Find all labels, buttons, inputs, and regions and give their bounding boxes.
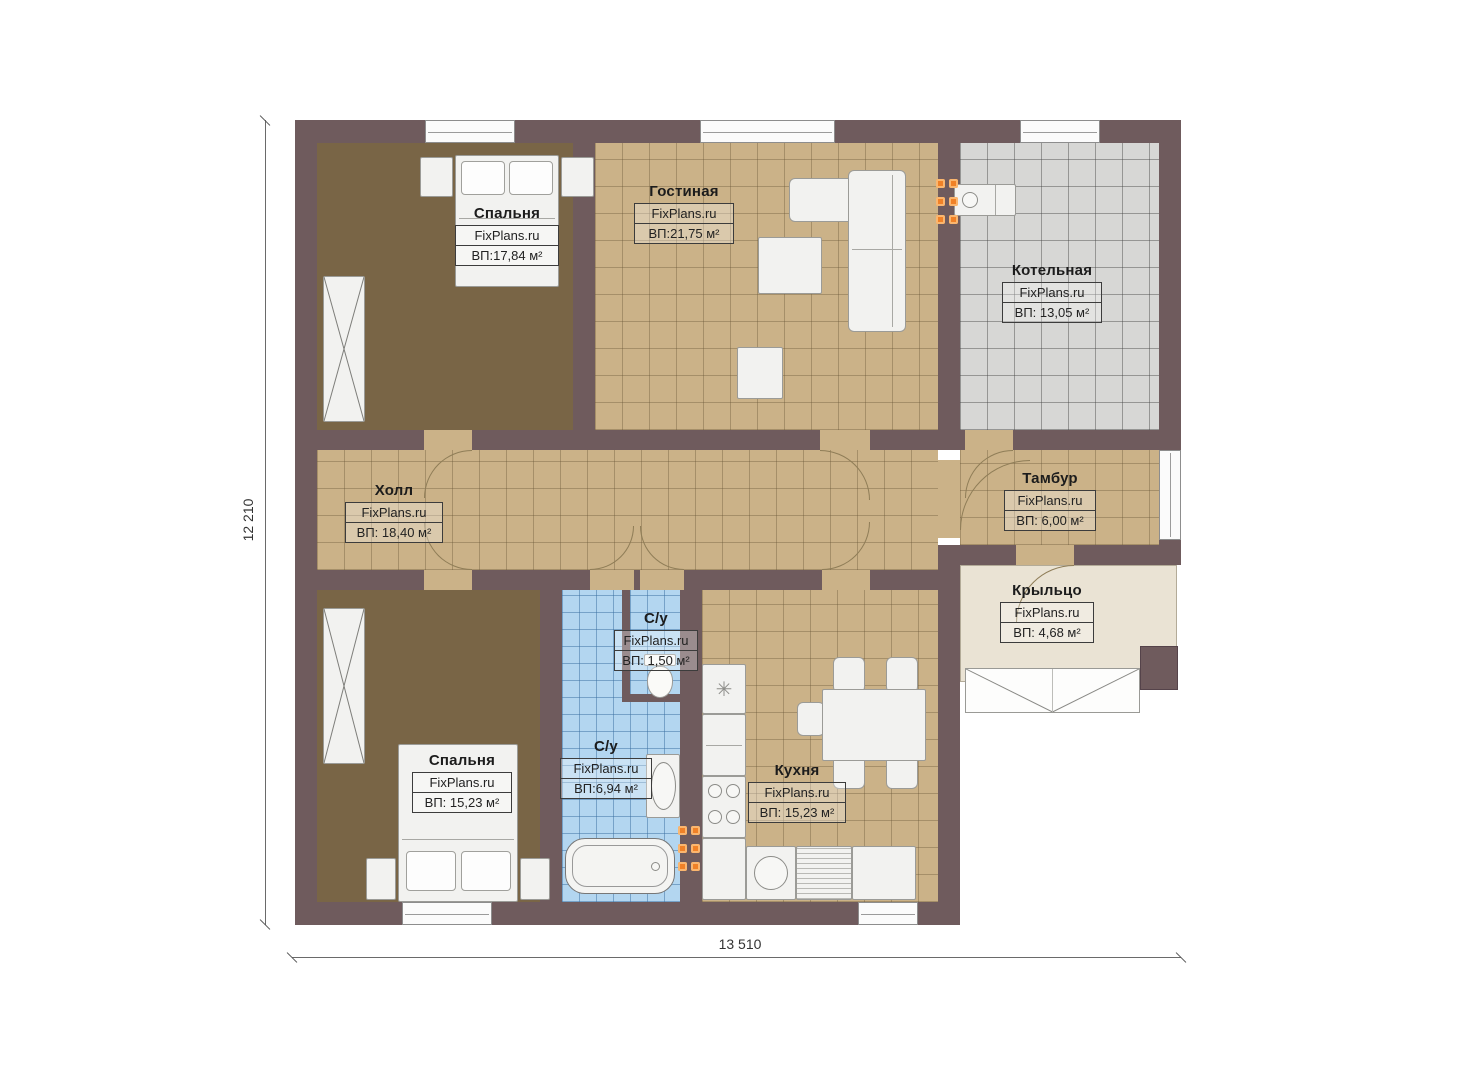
stove bbox=[702, 776, 746, 838]
room-area: ВП:21,75 м² bbox=[635, 224, 733, 243]
nightstand-left-bedroom-1 bbox=[420, 157, 453, 197]
brand-watermark: FixPlans.ru bbox=[635, 204, 733, 224]
room-area: ВП: 6,00 м² bbox=[1005, 511, 1095, 530]
wall-kitchen-right bbox=[938, 545, 960, 925]
pillow bbox=[509, 161, 553, 195]
room-area: ВП:6,94 м² bbox=[561, 779, 651, 798]
brand-watermark: FixPlans.ru bbox=[1001, 603, 1093, 623]
sofa-corner-section bbox=[848, 170, 906, 332]
pillow bbox=[461, 851, 511, 891]
wardrobe-cross-icon bbox=[324, 609, 364, 763]
bathtub-drain-icon bbox=[651, 862, 660, 871]
door-gap-bathroom bbox=[640, 570, 684, 590]
sink-bowl bbox=[754, 856, 788, 890]
dimension-label-left: 12 210 bbox=[240, 490, 256, 550]
window-living-room bbox=[700, 120, 835, 143]
room-label-hall: Холл FixPlans.ru ВП: 18,40 м² bbox=[345, 482, 443, 543]
brand-watermark: FixPlans.ru bbox=[413, 773, 511, 793]
room-label-living-room: Гостиная FixPlans.ru ВП:21,75 м² bbox=[634, 183, 734, 244]
brand-watermark: FixPlans.ru bbox=[749, 783, 845, 803]
brand-watermark: FixPlans.ru bbox=[1003, 283, 1101, 303]
door-gap-living-room bbox=[820, 430, 870, 450]
kitchen-cabinet-upper bbox=[702, 714, 746, 776]
brand-watermark: FixPlans.ru bbox=[1005, 491, 1095, 511]
door-gap-hall-vestibule bbox=[938, 460, 960, 538]
radiator-living-boiler bbox=[936, 179, 958, 224]
wardrobe-bedroom-2 bbox=[323, 608, 365, 764]
pillow bbox=[406, 851, 456, 891]
dimension-label-bottom: 13 510 bbox=[700, 936, 780, 952]
armchair-pouf bbox=[737, 347, 783, 399]
dining-table bbox=[822, 689, 926, 761]
burner-icon bbox=[726, 810, 740, 824]
room-area: ВП: 15,23 м² bbox=[413, 793, 511, 812]
brand-watermark: FixPlans.ru bbox=[456, 226, 558, 246]
room-area: ВП: 15,23 м² bbox=[749, 803, 845, 822]
nightstand-left-bedroom-2 bbox=[366, 858, 396, 900]
window-vestibule-right bbox=[1159, 450, 1181, 540]
fridge: ✳ bbox=[702, 664, 746, 714]
dining-chair bbox=[797, 702, 825, 736]
blanket-fold-line bbox=[402, 839, 514, 840]
bathtub bbox=[565, 838, 675, 894]
room-label-vestibule: Тамбур FixPlans.ru ВП: 6,00 м² bbox=[1004, 470, 1096, 531]
room-label-bathroom: С/у FixPlans.ru ВП:6,94 м² bbox=[560, 738, 652, 799]
porch-steps bbox=[965, 668, 1140, 713]
radiator-bathroom-kitchen bbox=[678, 826, 700, 871]
brand-watermark: FixPlans.ru bbox=[615, 631, 697, 651]
kitchen-cabinet-lower bbox=[702, 838, 746, 900]
room-label-bedroom-2: Спальня FixPlans.ru ВП: 15,23 м² bbox=[412, 752, 512, 813]
window-kitchen bbox=[858, 902, 918, 925]
wardrobe-cross-icon bbox=[324, 277, 364, 421]
dining-chair bbox=[886, 657, 918, 693]
pillow bbox=[461, 161, 505, 195]
boiler-divider bbox=[995, 185, 996, 215]
dish-rack-counter bbox=[796, 846, 852, 900]
burner-icon bbox=[708, 810, 722, 824]
wall-outer-left bbox=[295, 120, 317, 925]
room-area: ВП: 1,50 м² bbox=[615, 651, 697, 670]
porch-column bbox=[1140, 646, 1178, 690]
sofa-seat-line bbox=[852, 249, 902, 250]
room-area: ВП: 13,05 м² bbox=[1003, 303, 1101, 322]
nightstand-right-bedroom-1 bbox=[561, 157, 594, 197]
room-label-wc: С/у FixPlans.ru ВП: 1,50 м² bbox=[614, 610, 698, 671]
room-label-boiler-room: Котельная FixPlans.ru ВП: 13,05 м² bbox=[1002, 262, 1102, 323]
door-gap-entry bbox=[1016, 545, 1074, 565]
room-area: ВП: 4,68 м² bbox=[1001, 623, 1093, 642]
steps-marks-icon bbox=[966, 669, 1139, 712]
kitchen-sink-unit bbox=[746, 846, 796, 900]
boiler-unit bbox=[954, 184, 1016, 216]
door-gap-bedroom-2 bbox=[424, 570, 472, 590]
floor-plan-canvas: ✳ Спальня FixPlans.ru ВП:17,84 м² Гостин… bbox=[0, 0, 1474, 1080]
room-label-kitchen: Кухня FixPlans.ru ВП: 15,23 м² bbox=[748, 762, 846, 823]
coffee-table bbox=[758, 237, 822, 294]
burner-icon bbox=[726, 784, 740, 798]
door-gap-boiler-vestibule bbox=[965, 430, 1013, 450]
burner-icon bbox=[708, 784, 722, 798]
nightstand-right-bedroom-2 bbox=[520, 858, 550, 900]
washbasin-bowl bbox=[651, 762, 676, 810]
kitchen-counter bbox=[852, 846, 916, 900]
dining-chair bbox=[833, 657, 865, 693]
dimension-line-bottom bbox=[292, 957, 1181, 958]
brand-watermark: FixPlans.ru bbox=[561, 759, 651, 779]
door-gap-bedroom-1 bbox=[424, 430, 472, 450]
door-gap-wc bbox=[590, 570, 634, 590]
room-area: ВП: 18,40 м² bbox=[346, 523, 442, 542]
room-label-porch: Крыльцо FixPlans.ru ВП: 4,68 м² bbox=[1000, 582, 1094, 643]
boiler-dial-icon bbox=[962, 192, 978, 208]
room-area: ВП:17,84 м² bbox=[456, 246, 558, 265]
cabinet-line bbox=[706, 745, 742, 746]
window-bedroom-1 bbox=[425, 120, 515, 143]
wall-bedroom2-bath bbox=[540, 590, 562, 902]
room-label-bedroom-1: Спальня FixPlans.ru ВП:17,84 м² bbox=[455, 205, 559, 266]
door-gap-kitchen bbox=[822, 570, 870, 590]
window-boiler-room bbox=[1020, 120, 1100, 143]
window-bedroom-2 bbox=[402, 902, 492, 925]
dimension-line-left bbox=[265, 120, 266, 925]
sofa-back-line bbox=[892, 175, 893, 327]
brand-watermark: FixPlans.ru bbox=[346, 503, 442, 523]
wardrobe-bedroom-1 bbox=[323, 276, 365, 422]
